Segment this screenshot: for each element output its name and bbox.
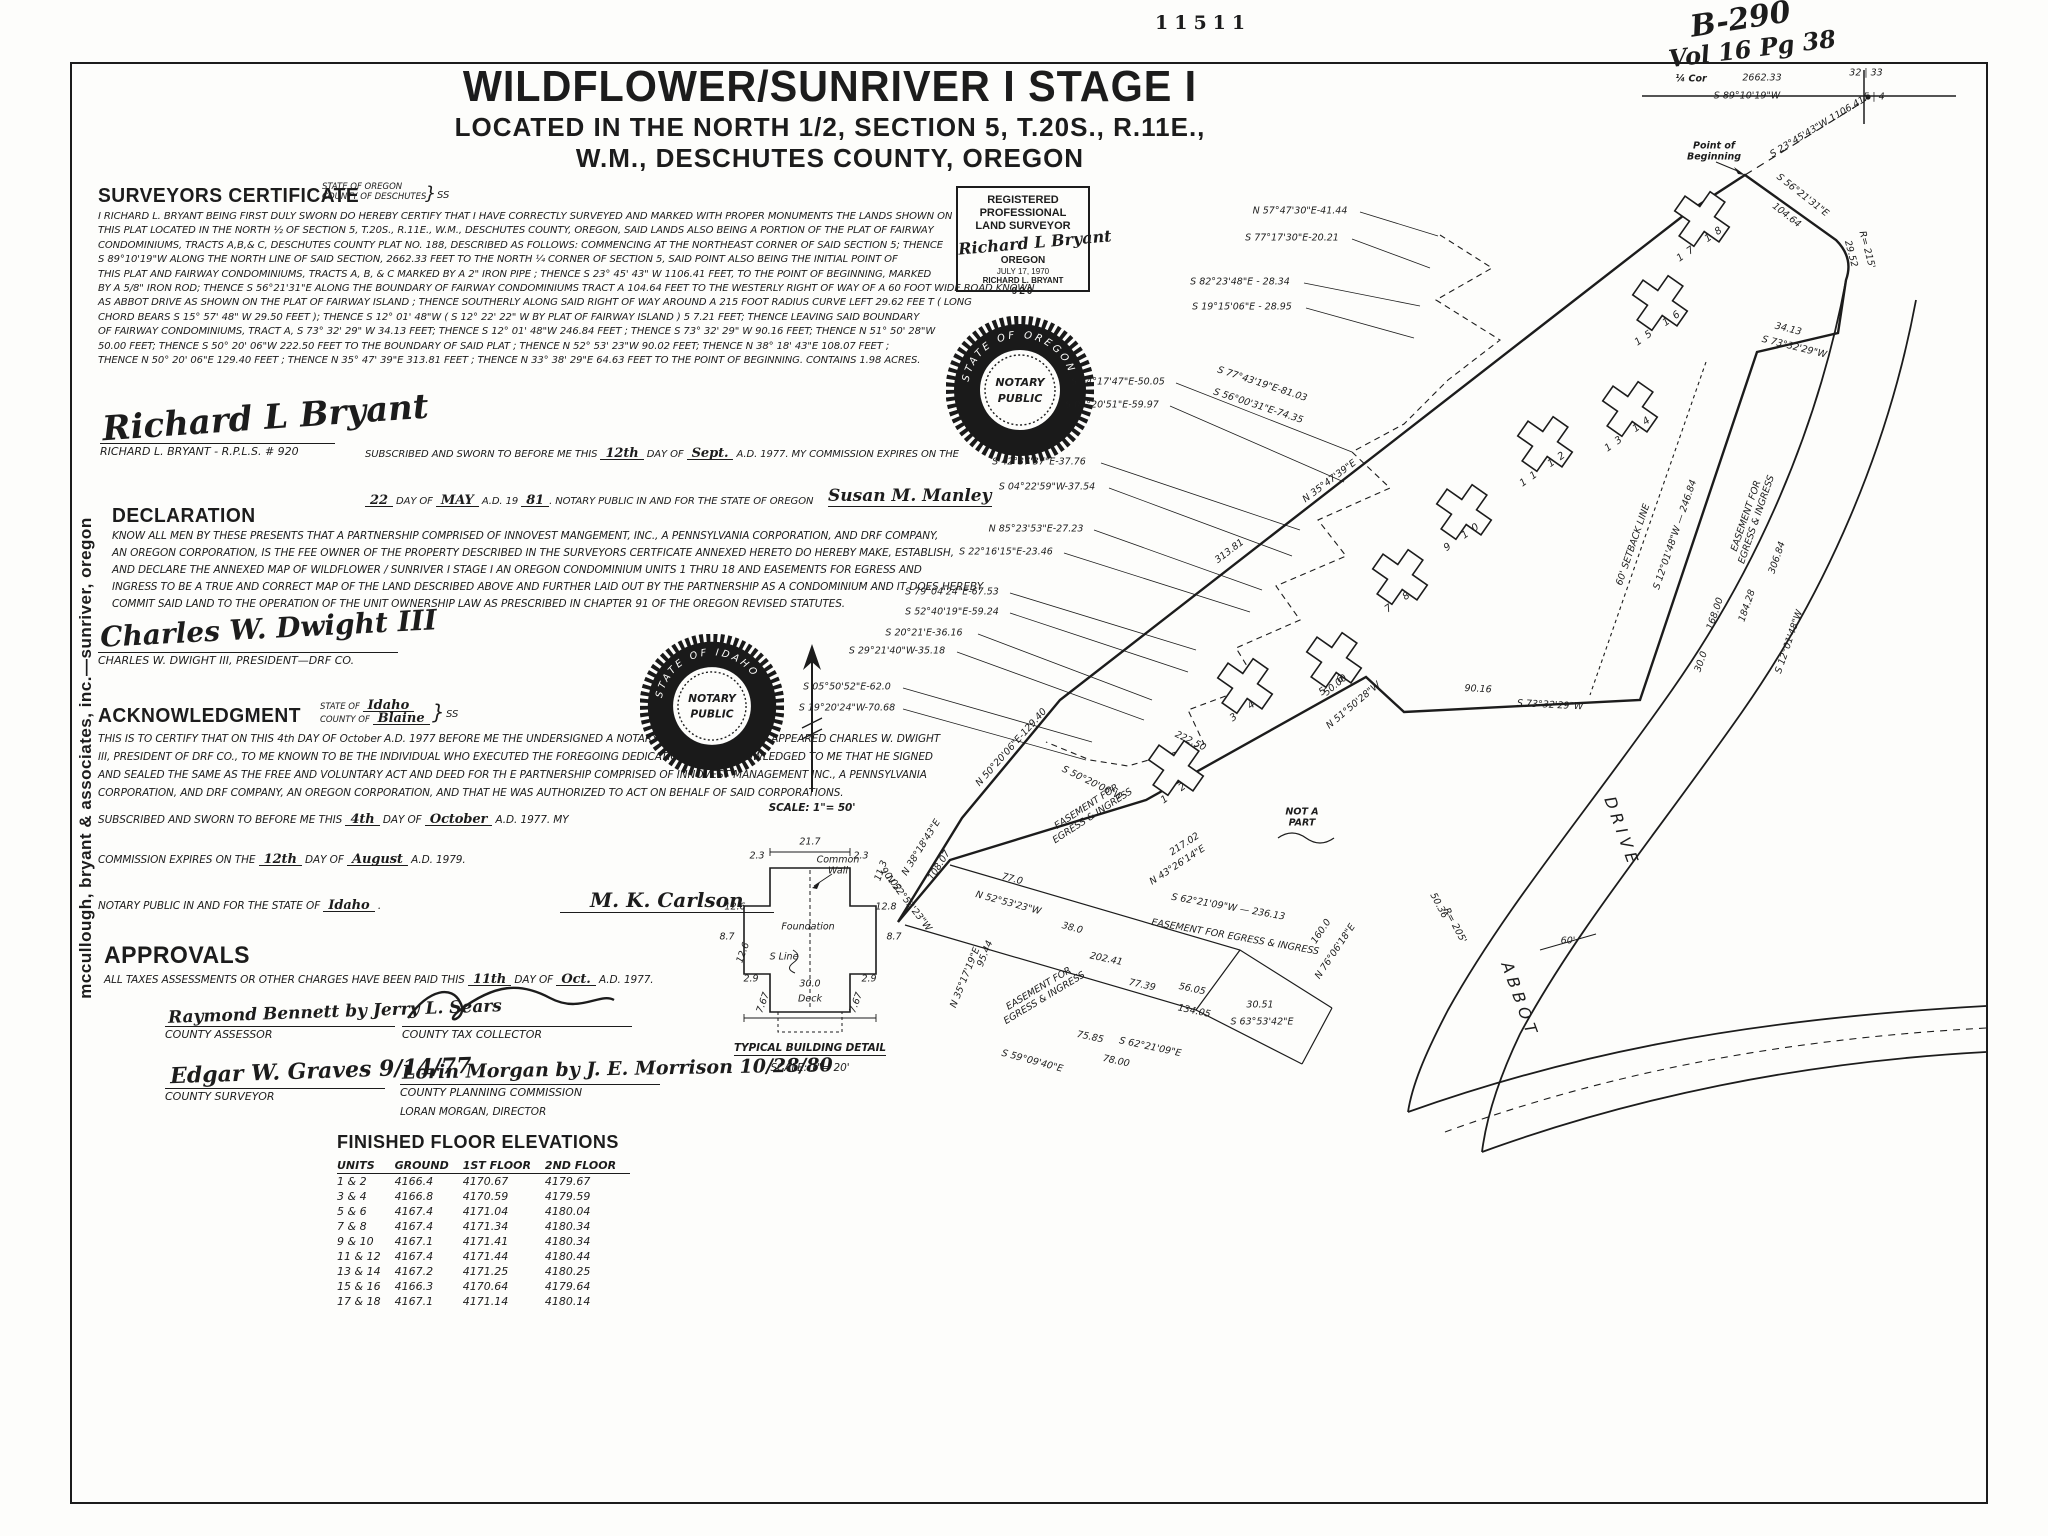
detail-deck-label: Deck: [798, 995, 822, 1006]
unit-number-label: 7 8: [1383, 587, 1417, 615]
detail-dimension-label: 8.7: [886, 933, 901, 944]
building-detail-caption: TYPICAL BUILDING DETAIL: [734, 1040, 886, 1057]
detail-dimension-label: 12.6: [724, 903, 745, 914]
building-detail-caption-text: TYPICAL BUILDING DETAIL: [734, 1042, 886, 1056]
detail-dimension-label: 12.8: [875, 903, 896, 914]
unit-number-label: 15 16: [1633, 306, 1687, 349]
map-scale-note: SCALE: 1"= 50': [769, 800, 856, 817]
detail-dimension-label: 30.0: [799, 980, 820, 991]
unit-number-label: 11 12: [1518, 447, 1572, 490]
detail-dimension-label: 21.7: [799, 838, 820, 849]
detail-dimension-label: 2.9: [861, 975, 876, 986]
unit-label-layer: 1 23 45 67 89 1011 1213 1415 1617 18: [0, 0, 2048, 1536]
detail-s-line-label: S Line: [770, 953, 799, 964]
detail-dimension-label: 2.3: [853, 852, 868, 863]
unit-number-label: 9 10: [1442, 518, 1486, 554]
detail-dimension-label: 8.7: [719, 933, 734, 944]
unit-number-label: 1 2: [1159, 778, 1193, 806]
unit-number-label: 17 18: [1675, 222, 1729, 265]
detail-foundation-label: Foundation: [781, 923, 834, 934]
plat-sheet: 11511 B-290 Vol 16 Pg 38 WILDFLOWER/SUNR…: [0, 0, 2048, 1536]
unit-number-label: 3 4: [1228, 696, 1262, 724]
unit-number-label: 5 6: [1317, 670, 1351, 698]
building-detail-scale: SCALE: 1"= 20': [770, 1060, 849, 1077]
unit-number-label: 13 14: [1603, 412, 1657, 455]
detail-dimension-label: 2.9: [743, 975, 758, 986]
detail-dimension-label: 2.3: [749, 852, 764, 863]
